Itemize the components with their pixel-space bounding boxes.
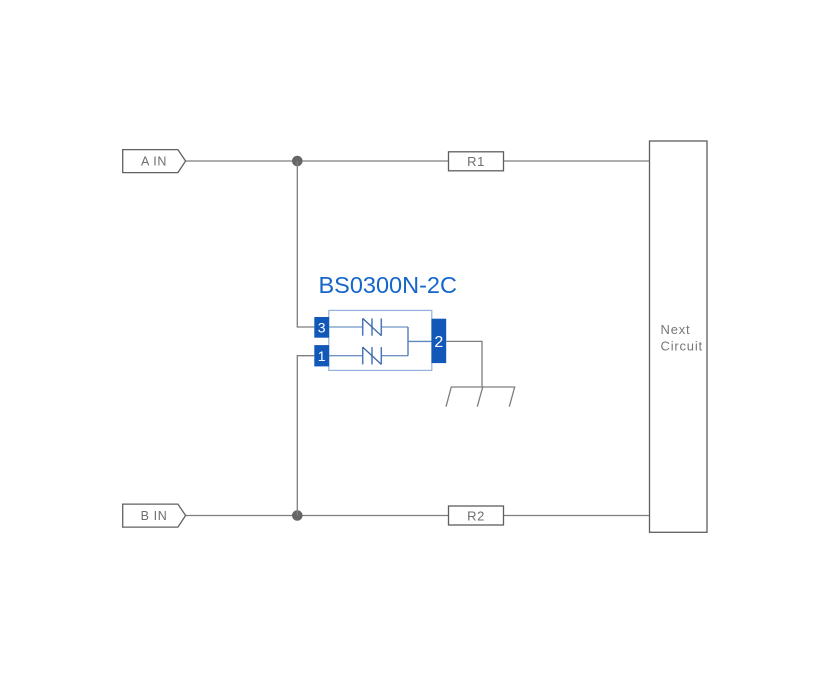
svg-text:1: 1 [318, 348, 326, 364]
svg-text:BS0300N-2C: BS0300N-2C [319, 272, 457, 298]
svg-text:2: 2 [434, 334, 443, 351]
svg-text:Next: Next [661, 322, 691, 337]
svg-text:B IN: B IN [141, 509, 168, 523]
svg-text:R1: R1 [467, 154, 485, 169]
svg-text:Circuit: Circuit [661, 339, 703, 354]
svg-text:A IN: A IN [141, 155, 167, 169]
svg-text:3: 3 [318, 319, 326, 335]
svg-text:R2: R2 [467, 508, 485, 523]
